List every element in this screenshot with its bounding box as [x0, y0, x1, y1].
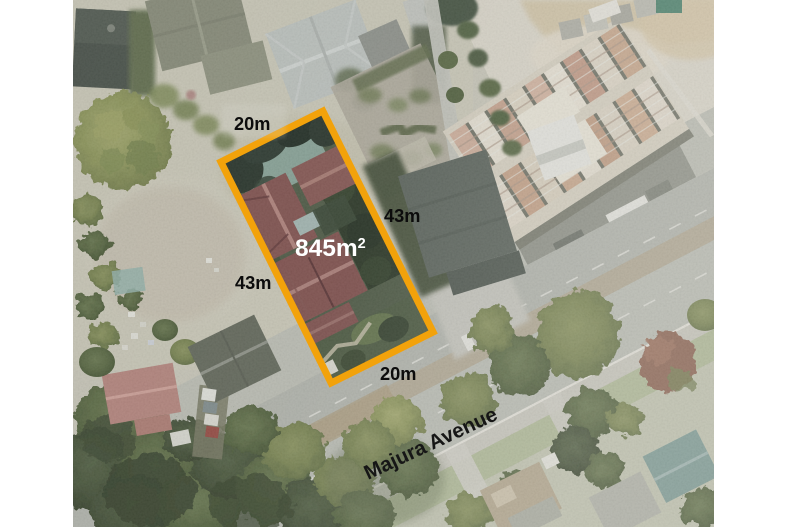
svg-text:43m: 43m	[235, 273, 271, 293]
svg-text:20m: 20m	[380, 364, 416, 384]
svg-text:20m: 20m	[234, 114, 270, 134]
svg-text:43m: 43m	[384, 206, 420, 226]
svg-text:845m2: 845m2	[295, 235, 366, 262]
